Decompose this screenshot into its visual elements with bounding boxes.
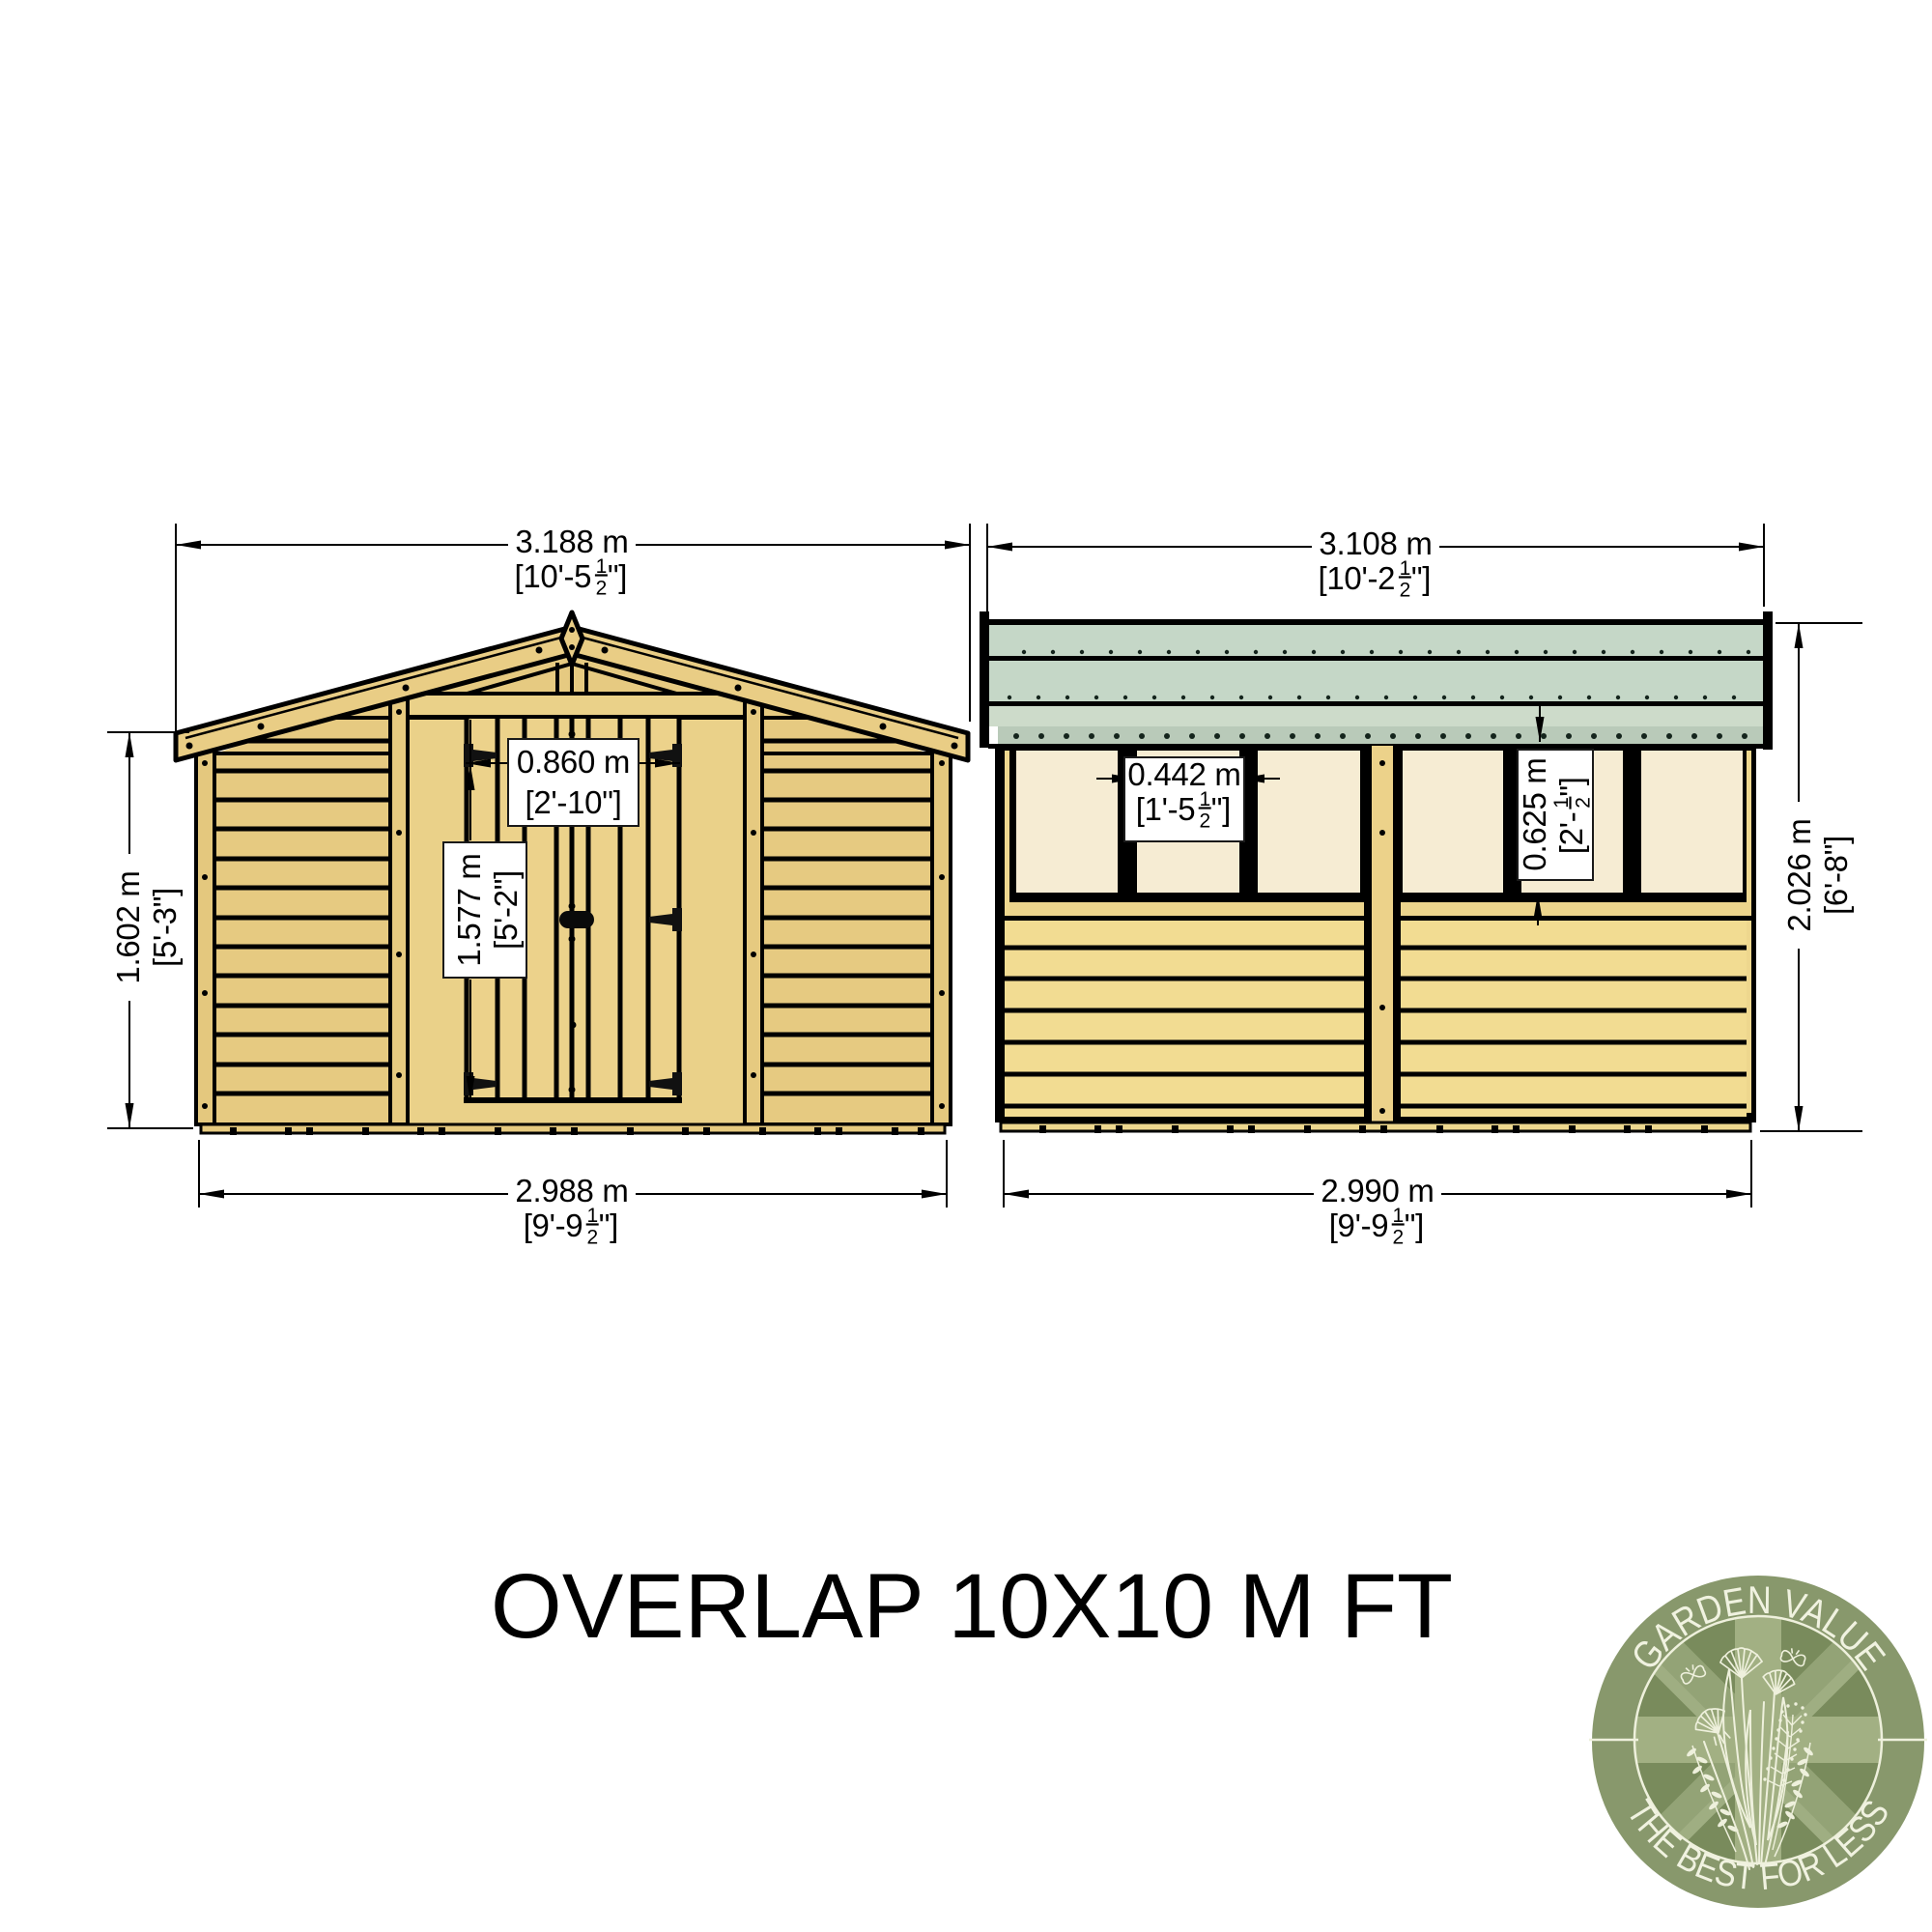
svg-text:[9'-9: [9'-9	[1329, 1207, 1389, 1243]
svg-text:0.442 m: 0.442 m	[1127, 756, 1240, 792]
svg-text:2: 2	[596, 578, 607, 600]
svg-text:2: 2	[1393, 1227, 1404, 1249]
svg-text:"]: "]	[608, 558, 627, 594]
svg-text:[2'-: [2'-	[1553, 812, 1589, 855]
svg-text:[2'-10"]: [2'-10"]	[526, 784, 622, 820]
svg-text:0.625 m: 0.625 m	[1517, 757, 1552, 870]
svg-text:2: 2	[1400, 580, 1410, 602]
svg-text:[5'-2"]: [5'-2"]	[488, 870, 524, 950]
svg-text:"]: "]	[1211, 791, 1231, 827]
svg-text:"]: "]	[599, 1207, 618, 1243]
svg-text:2: 2	[587, 1227, 598, 1249]
svg-text:3.108 m: 3.108 m	[1319, 526, 1432, 561]
svg-text:2.026 m: 2.026 m	[1781, 818, 1817, 931]
svg-text:2: 2	[1573, 797, 1595, 808]
svg-text:[6'-8"]: [6'-8"]	[1818, 836, 1854, 915]
svg-text:OVERLAP 10X10 M FT: OVERLAP 10X10 M FT	[491, 1555, 1453, 1658]
svg-text:[10'-2: [10'-2	[1319, 560, 1396, 596]
svg-text:2.990 m: 2.990 m	[1321, 1173, 1434, 1208]
svg-text:3.188 m: 3.188 m	[515, 524, 628, 559]
svg-text:1.602 m: 1.602 m	[110, 870, 146, 983]
svg-text:[5'-3"]: [5'-3"]	[147, 888, 183, 967]
svg-text:2.988 m: 2.988 m	[515, 1173, 628, 1208]
svg-text:"]: "]	[1553, 777, 1589, 796]
svg-text:[1'-5: [1'-5	[1136, 791, 1196, 827]
svg-text:"]: "]	[1405, 1207, 1424, 1243]
svg-text:[9'-9: [9'-9	[524, 1207, 583, 1243]
svg-text:[10'-5: [10'-5	[515, 558, 592, 594]
svg-text:"]: "]	[1411, 560, 1431, 596]
svg-text:1.577 m: 1.577 m	[451, 853, 487, 966]
svg-text:2: 2	[1200, 810, 1210, 833]
svg-text:0.860 m: 0.860 m	[517, 744, 630, 780]
